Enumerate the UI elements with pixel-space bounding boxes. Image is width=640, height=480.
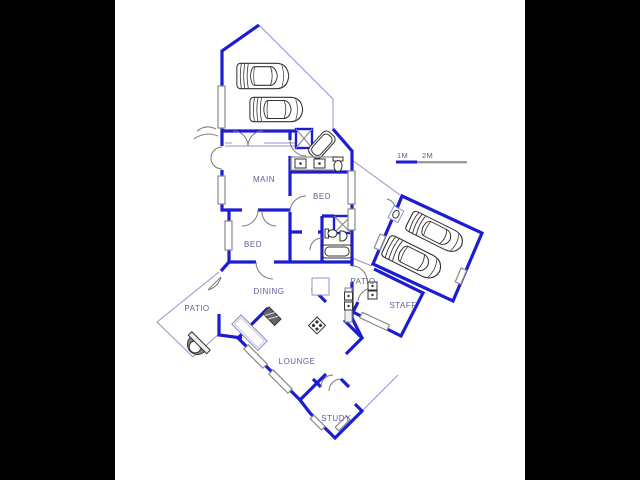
scale-label-2m: 2M [422,151,433,160]
room-label-dining: DINING [254,287,285,296]
letterbox-left [0,0,115,480]
window-glyph [348,209,355,230]
room-label-study: STUDY [321,414,351,423]
letterbox-right [525,0,640,480]
toilet-icon [325,229,337,238]
room-label-lounge: LOUNGE [279,357,316,366]
scale-bar-2m-segment [417,161,467,163]
room-label-main: MAIN [253,175,275,184]
floor-plan-canvas: MAIN BED BED DINING PATIO PATIO STAFF LO… [0,0,640,480]
room-label-staff: STAFF [389,301,416,310]
kitchen-island [312,278,329,295]
window-glyph [225,221,232,250]
room-label-bed-right: BED [313,192,331,201]
window-glyph [348,171,355,204]
room-label-bed-left: BED [244,240,262,249]
window-glyph [218,176,225,204]
car-icon [250,97,303,121]
room-label-patio-right: PATIO [350,277,375,286]
floor-plan-screenshot: MAIN BED BED DINING PATIO PATIO STAFF LO… [0,0,640,480]
car-icon [237,63,289,88]
room-label-patio-left: PATIO [184,304,209,313]
scale-bar-1m-segment [396,161,417,164]
sink-icon [340,231,347,241]
window-glyph [218,86,225,128]
toilet-icon [333,157,343,172]
bathtub-icon [323,245,351,258]
scale-label-1m: 1M [397,151,408,160]
